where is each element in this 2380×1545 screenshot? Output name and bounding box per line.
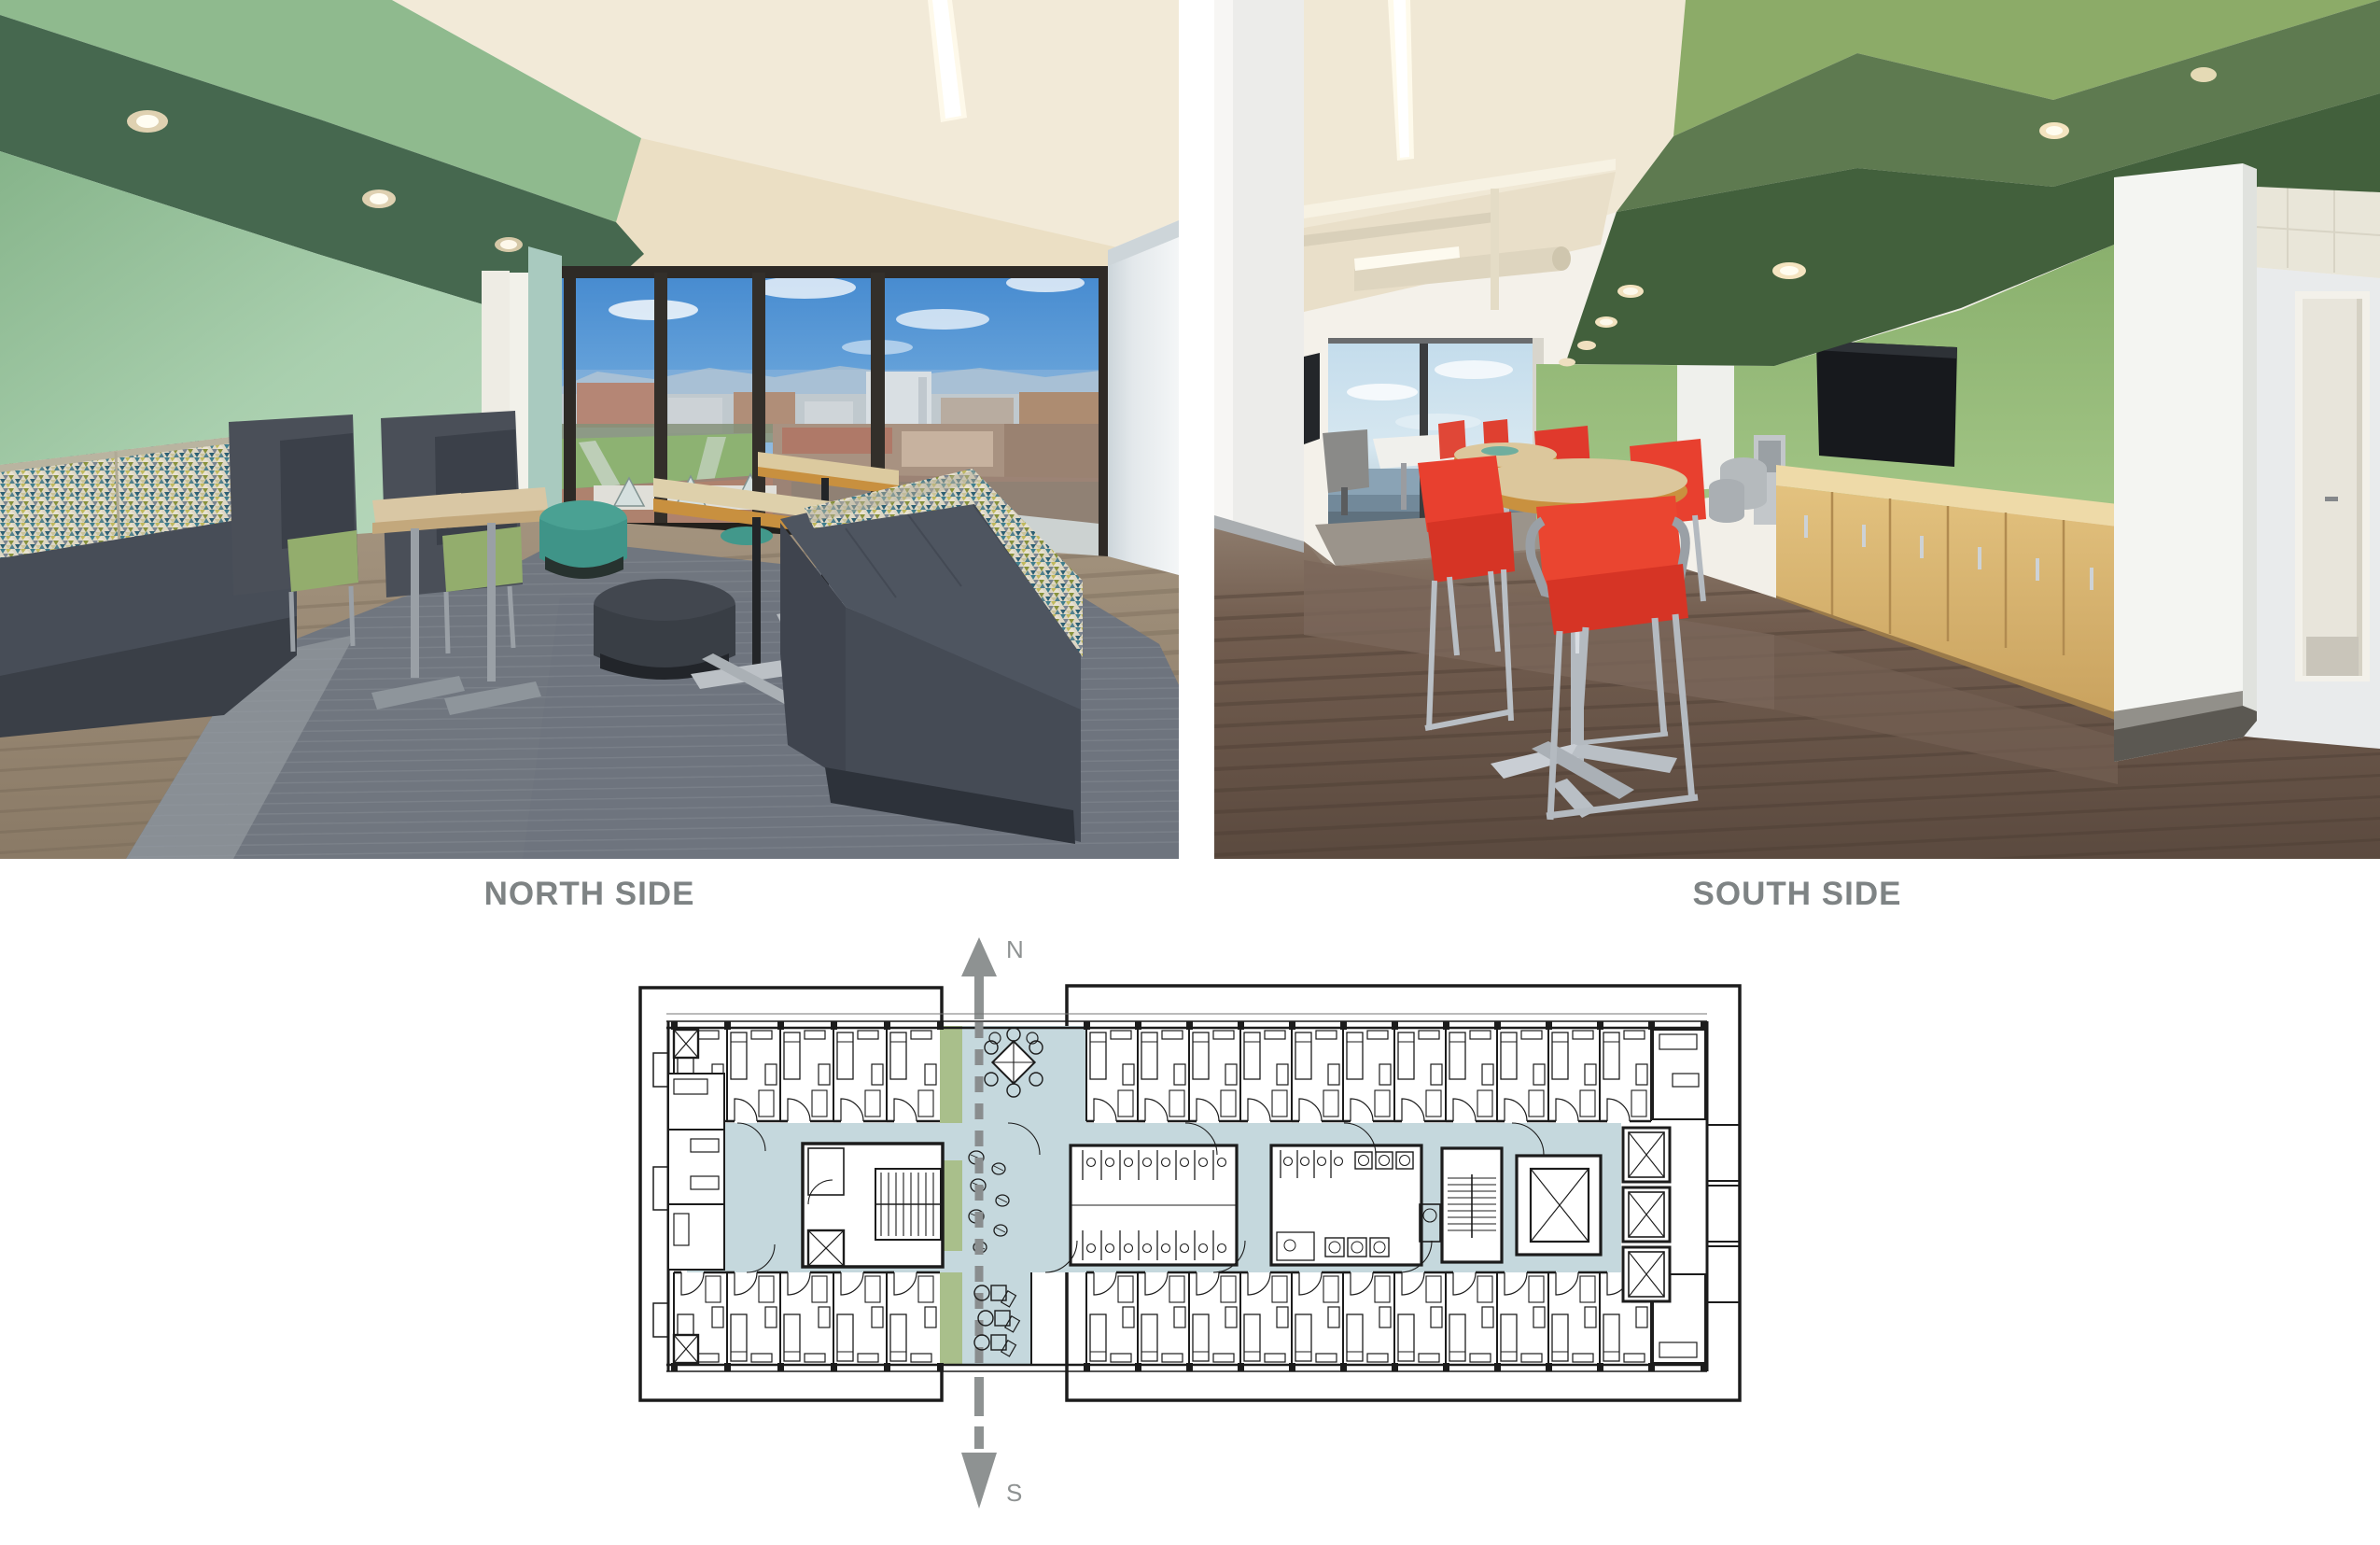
svg-text:S: S <box>1006 1479 1022 1507</box>
svg-text:N: N <box>1006 935 1024 963</box>
